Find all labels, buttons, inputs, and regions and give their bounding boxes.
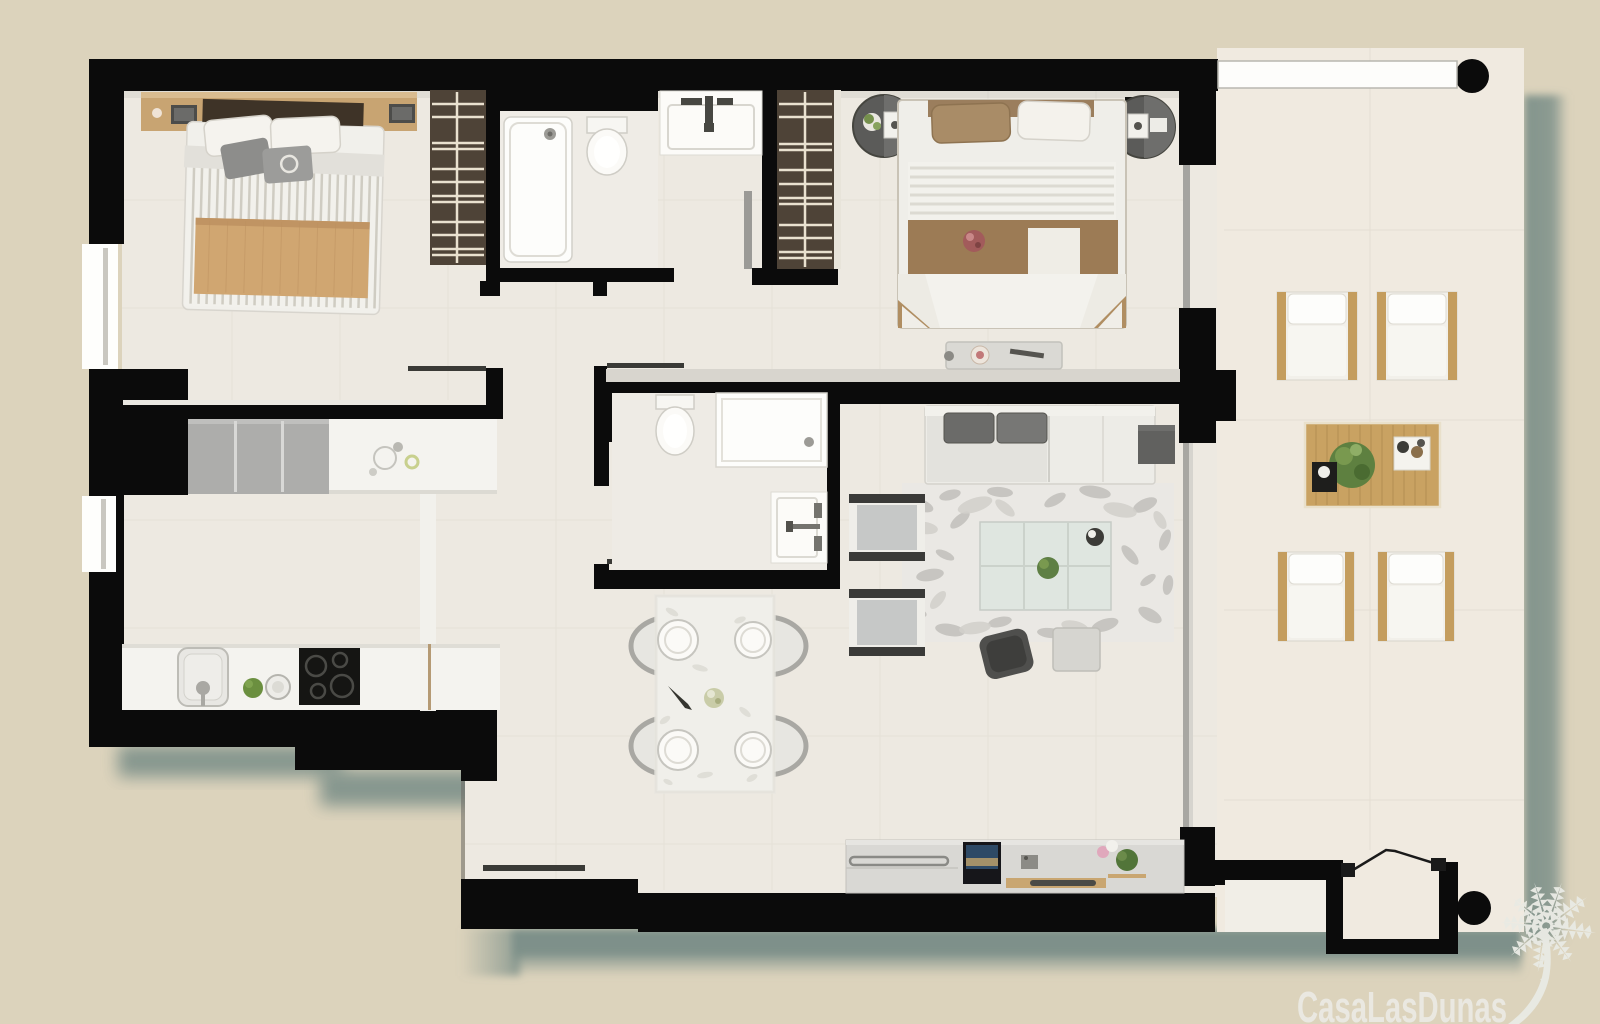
svg-text:CasaLasDunas: CasaLasDunas — [1297, 983, 1507, 1024]
